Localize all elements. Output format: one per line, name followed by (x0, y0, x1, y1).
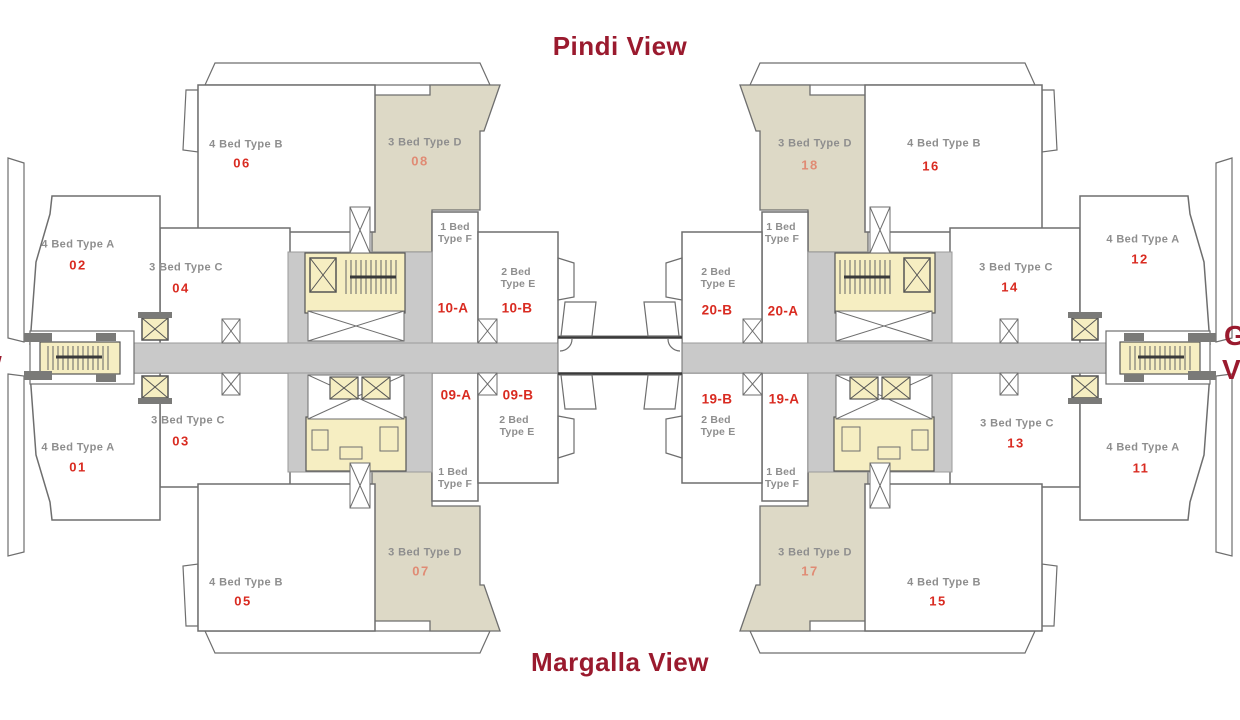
parapet-top-right (750, 63, 1035, 85)
shaft-d17 (870, 463, 890, 508)
wall-cap (96, 333, 116, 341)
shaft-e-top-left (478, 319, 497, 343)
parapet-bottom-right (750, 631, 1035, 653)
elevator-core-top-left (310, 258, 336, 292)
floorplan-page: Pindi View Margalla View G V w 4 Bed Typ… (0, 0, 1240, 720)
wall-cap (1124, 333, 1144, 341)
shaft-e-bot-left (478, 373, 497, 395)
shaft-d08 (350, 207, 370, 253)
elevator-core-bot-left-2 (362, 377, 390, 399)
wall-cap (96, 374, 116, 382)
wall-cap (138, 398, 172, 404)
unit-4bed-a-11 (1080, 373, 1210, 520)
unit-4bed-b-16 (865, 85, 1042, 232)
elevator-left-upper (142, 318, 168, 340)
unit-4bed-b-15 (865, 484, 1042, 631)
wall-cap (24, 371, 52, 380)
balcony-e-bot-right (666, 416, 682, 458)
unit-1bed-f-10a (432, 212, 478, 344)
shaft-c13 (1000, 373, 1018, 395)
bridge-lobby (558, 336, 682, 375)
shaft-e-top-right (743, 319, 762, 343)
shaft-core-top-left (308, 311, 404, 341)
unit-1bed-f-19a (762, 373, 808, 501)
elevator-core-top-right (904, 258, 930, 292)
wall-cap (138, 312, 172, 318)
wall-cap (1188, 333, 1216, 342)
bridge-trap-br (644, 375, 679, 409)
shaft-c03 (222, 373, 240, 395)
unit-4bed-a-02 (30, 196, 160, 344)
parapet-top-left (205, 63, 490, 85)
elevator-right-lower (1072, 376, 1098, 398)
unit-1bed-f-20a (762, 212, 808, 344)
shaft-c04 (222, 319, 240, 343)
unit-4bed-a-01 (30, 373, 160, 520)
edge-left-lower (8, 374, 24, 556)
balcony-e-top-left (558, 258, 574, 300)
parapet-bottom-left (205, 631, 490, 653)
edge-right-lower (1216, 374, 1232, 556)
balcony-b16 (1042, 90, 1057, 152)
bridge-trap-bl (561, 375, 596, 409)
balcony-b06 (183, 90, 198, 152)
shaft-d18 (870, 207, 890, 253)
wall-cap (24, 333, 52, 342)
edge-right-upper (1216, 158, 1232, 342)
balcony-b15 (1042, 564, 1057, 626)
floorplan-svg (0, 0, 1240, 720)
elevator-core-bot-left-1 (330, 377, 358, 399)
elevator-core-bot-right-2 (882, 377, 910, 399)
elevator-core-bot-right-1 (850, 377, 878, 399)
unit-4bed-b-05 (198, 484, 375, 631)
elevator-right-upper (1072, 318, 1098, 340)
shaft-c14 (1000, 319, 1018, 343)
shaft-core-top-right (836, 311, 932, 341)
balcony-e-bot-left (558, 416, 574, 458)
corridor-band-right (682, 343, 1112, 373)
wall-cap (1188, 371, 1216, 380)
edge-left-upper (8, 158, 24, 342)
shaft-d07 (350, 463, 370, 508)
bridge-trap-tr (644, 302, 679, 336)
shaft-e-bot-right (743, 373, 762, 395)
wall-cap (1068, 312, 1102, 318)
bridge-trap-tl (561, 302, 596, 336)
corridor-band-left (110, 343, 558, 373)
unit-4bed-a-12 (1080, 196, 1210, 344)
balcony-b05 (183, 564, 198, 626)
unit-1bed-f-09a (432, 373, 478, 501)
balcony-e-top-right (666, 258, 682, 300)
wall-cap (1124, 374, 1144, 382)
unit-4bed-b-06 (198, 85, 375, 232)
elevator-left-lower (142, 376, 168, 398)
wall-cap (1068, 398, 1102, 404)
